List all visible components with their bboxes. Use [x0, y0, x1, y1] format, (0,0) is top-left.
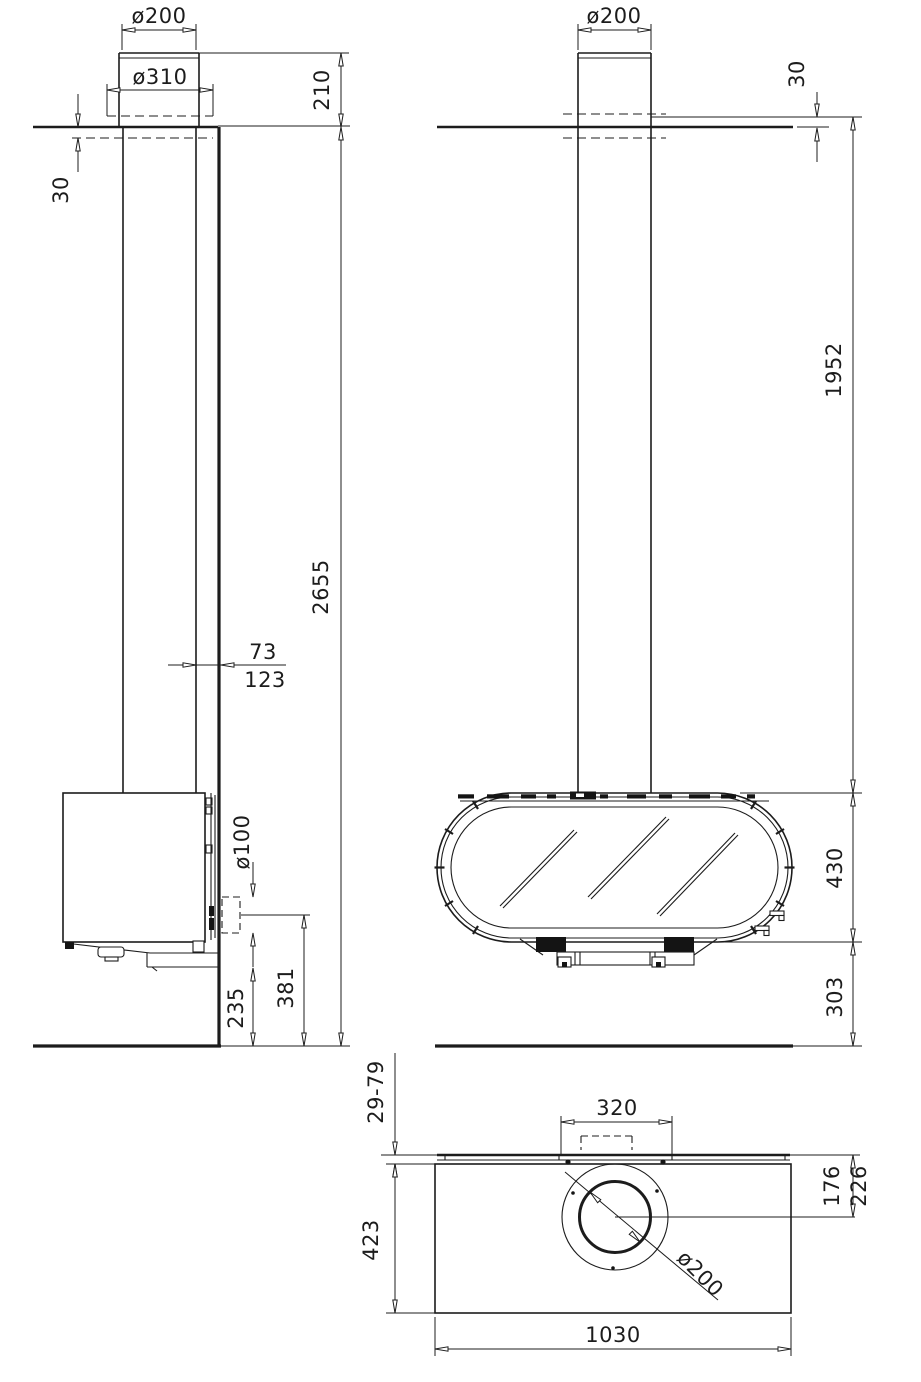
- dim-label-side-pipe-to-wall-min: 73: [249, 640, 277, 664]
- dim-label-side-ceiling-height: 2655: [309, 559, 333, 614]
- dim-label-top-body-depth: 423: [359, 1219, 383, 1261]
- side-stove-body: [63, 793, 219, 971]
- dim-label-side-rear-outlet-diameter: ø100: [230, 815, 254, 870]
- dim-label-top-bracket-width: 320: [596, 1096, 638, 1120]
- dim-top-center-to-wall: 176 226: [820, 1155, 871, 1217]
- side-rear-outlet-hidden: [222, 897, 240, 933]
- front-stove-body: [435, 792, 795, 968]
- dim-side-rear-outlet-diameter: ø100: [230, 815, 255, 967]
- top-view: ø200 320 29-79 423: [359, 1053, 871, 1356]
- dim-label-side-plate-drop: 30: [49, 176, 73, 204]
- dim-top-body-depth: 423: [359, 1164, 435, 1313]
- top-bracket-hidden: [581, 1136, 632, 1150]
- dim-side-flue-diameter: ø200: [122, 4, 196, 50]
- dim-label-side-pipe-to-wall-max: 123: [244, 668, 286, 692]
- dim-label-side-outlet-center-height: 381: [274, 967, 298, 1009]
- dim-front-ceiling-to-body-top: 1952: [822, 117, 855, 793]
- front-glass-door: [451, 807, 778, 928]
- dim-side-ceiling-height: 2655: [309, 127, 343, 1046]
- front-door-hinges: [755, 911, 784, 936]
- dim-side-plate-drop: 30: [49, 94, 80, 204]
- dim-label-front-body-height: 430: [823, 847, 847, 889]
- dim-front-clearance-below: 303: [823, 942, 855, 1046]
- dim-label-top-body-width: 1030: [585, 1323, 640, 1347]
- dim-label-top-flue-diameter: ø200: [672, 1246, 728, 1302]
- dim-label-side-flue-diameter: ø200: [132, 4, 187, 28]
- dim-side-pipe-above-ceiling: 210: [199, 53, 349, 127]
- dim-label-front-ceiling-to-body-top: 1952: [822, 342, 846, 397]
- side-view: ø200 ø310 210 30: [33, 4, 350, 1046]
- dim-label-front-plate-drop: 30: [785, 60, 809, 88]
- dim-label-side-cover-plate-diameter: ø310: [133, 65, 188, 89]
- drawing-page: ø200 ø310 210 30: [0, 0, 921, 1382]
- technical-drawing-canvas: ø200 ø310 210 30: [0, 0, 921, 1382]
- front-view: ø200 30 1952 430 303: [435, 4, 863, 1046]
- side-hinge-block: [65, 942, 74, 949]
- dim-side-pipe-to-wall: 73 123: [168, 640, 286, 692]
- dim-label-front-clearance-below: 303: [823, 976, 847, 1018]
- dim-top-body-width: 1030: [435, 1317, 791, 1356]
- dim-label-top-center-to-wall-max: 226: [847, 1165, 871, 1207]
- dim-label-side-pipe-above-ceiling: 210: [310, 69, 334, 111]
- dim-label-top-center-to-wall-min: 176: [820, 1165, 844, 1207]
- side-flue-pipe: [119, 53, 199, 793]
- dim-front-body-height: 430: [823, 793, 855, 942]
- top-flue-collar: ø200: [562, 1164, 855, 1302]
- dim-side-underside-height: 235: [224, 968, 255, 1046]
- dim-front-flue-diameter: ø200: [578, 4, 651, 50]
- dim-side-cover-plate-diameter: ø310: [107, 65, 213, 116]
- dim-label-top-wall-gap-range: 29-79: [364, 1060, 388, 1124]
- front-glass-reflections: [500, 817, 738, 916]
- dim-front-plate-drop: 30: [785, 60, 819, 162]
- dim-label-front-flue-diameter: ø200: [587, 4, 642, 28]
- front-rim-ticks: [435, 801, 795, 934]
- dim-side-outlet-center-height: 381: [274, 915, 306, 1046]
- side-door-latch: [98, 947, 124, 957]
- front-flue-pipe: [578, 53, 651, 793]
- dim-top-bracket-width: 320: [561, 1096, 672, 1155]
- top-body-outline: [435, 1164, 791, 1313]
- dim-label-side-underside-height: 235: [224, 987, 248, 1029]
- dim-top-wall-gap-range: 29-79: [364, 1053, 411, 1177]
